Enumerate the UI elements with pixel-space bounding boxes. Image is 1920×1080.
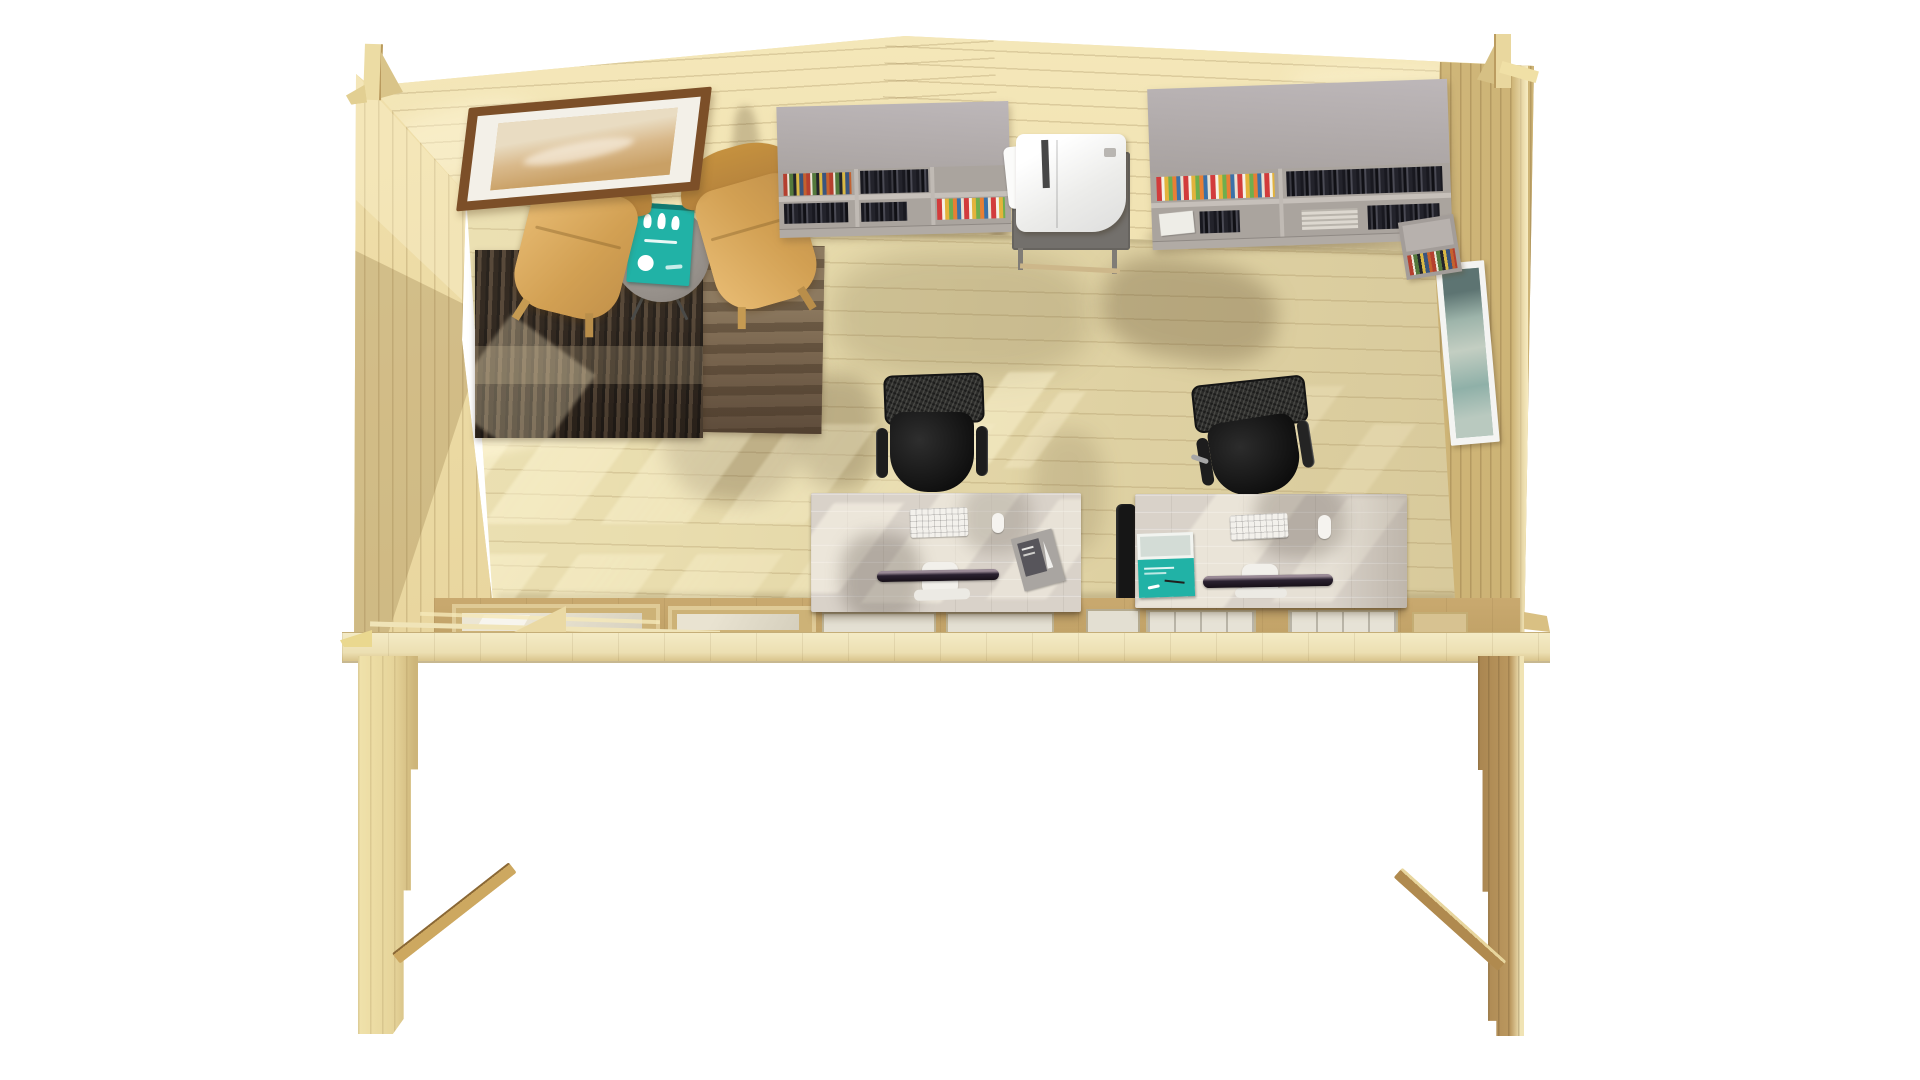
beam-right-stub (1524, 612, 1550, 632)
monitor-base-left (914, 588, 970, 601)
window-glass (677, 614, 799, 630)
pawn-icon (671, 216, 680, 231)
white-binder (1159, 211, 1195, 236)
mouse-left (992, 513, 1004, 533)
office-chair-left (876, 372, 988, 494)
shelf-top-face (1147, 79, 1450, 175)
printer (1016, 134, 1126, 232)
printer-output-slot (1041, 140, 1050, 188)
monitor-left (877, 569, 999, 582)
office-chair-right (1184, 371, 1322, 503)
shelf-divider (930, 167, 936, 225)
corner-shelf-block (1398, 214, 1462, 280)
armchair-leg (738, 307, 746, 329)
cabin-interior-render (0, 0, 1920, 1080)
pawn-icon (657, 213, 666, 230)
book-row (783, 172, 852, 196)
right-wall-picture-art (1442, 268, 1494, 439)
armchair-leg (585, 313, 593, 337)
booklet-glass-top (1137, 532, 1194, 560)
office-desk-left (811, 493, 1081, 612)
rug-sun-patch (475, 314, 595, 438)
front-beam (342, 632, 1550, 663)
book-row (860, 169, 929, 194)
book-row (1407, 248, 1458, 275)
chair-seat (1206, 412, 1305, 501)
teal-booklet (1137, 532, 1195, 598)
mouse-right (1318, 515, 1331, 539)
radiator-panel (1116, 504, 1136, 604)
art-swirl (523, 132, 634, 171)
desk-shadow-right-third (1331, 494, 1407, 608)
book-row (784, 202, 849, 224)
seat-seam (535, 225, 621, 249)
keyboard-left (910, 507, 969, 538)
book-row (937, 197, 1006, 220)
support-leg-right (1478, 656, 1524, 1036)
book-row (1199, 210, 1240, 233)
chair-seat (890, 412, 974, 492)
wall-shelf-left (776, 101, 1011, 237)
chair-armrest (976, 426, 988, 476)
monitor-right (1203, 574, 1333, 588)
shelf-divider (854, 169, 860, 227)
booklet-text-line (1144, 572, 1166, 575)
right-wall-edge-highlight (1512, 64, 1528, 648)
office-desk-right (1135, 494, 1407, 608)
printer-seam (1056, 140, 1058, 228)
booklet-text-line (1144, 567, 1174, 570)
keyboard-right (1229, 512, 1288, 540)
box-squiggle (665, 264, 682, 269)
booklet-bird (1148, 584, 1160, 589)
booklet-pencil (1165, 580, 1185, 584)
beam-grain (342, 633, 1550, 661)
fascia-gusset-left (381, 52, 403, 98)
fascia-board-left (363, 44, 383, 101)
booklet-cover (1138, 558, 1195, 598)
support-leg-left (358, 656, 418, 1034)
book-row (1286, 166, 1443, 196)
shelf-top-face (776, 101, 1010, 173)
poster-panel (1017, 538, 1047, 577)
chair-armrest (876, 428, 888, 478)
magazine-stack (1301, 208, 1358, 230)
shelf-front (778, 165, 1011, 229)
book-row (1156, 173, 1275, 201)
printer-control-panel (1104, 148, 1116, 157)
monitor-base-right (1235, 588, 1287, 598)
book-row (861, 202, 907, 222)
corner-shelf-top (1402, 219, 1453, 252)
